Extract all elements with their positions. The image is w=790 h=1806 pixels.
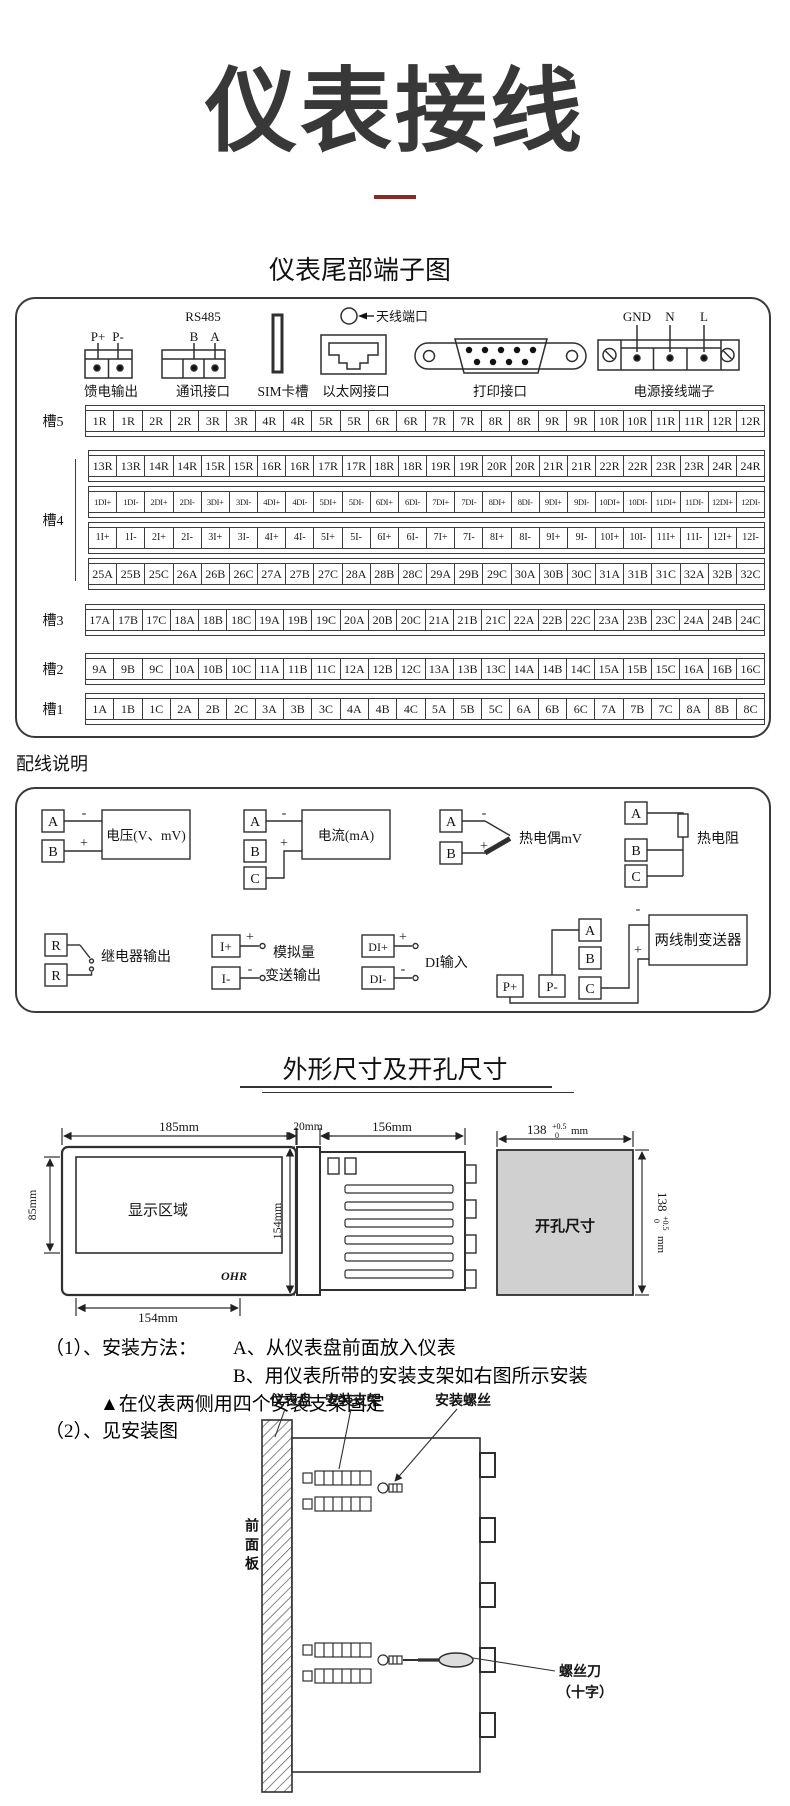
install-step1-b: B、用仪表所带的安装支架如右图所示安装 bbox=[233, 1361, 588, 1388]
terminal-cell: 5A bbox=[426, 699, 454, 719]
terminal-cell: 8DI+ bbox=[483, 492, 511, 512]
tc-t2: B bbox=[446, 847, 455, 862]
terminal-cell: 4I- bbox=[286, 528, 314, 548]
terminal-cell: 16R bbox=[258, 456, 286, 476]
terminal-cell: 24R bbox=[709, 456, 737, 476]
terminal-cell: 22B bbox=[539, 610, 567, 630]
terminal-cell: 1R bbox=[86, 411, 114, 431]
terminal-cell: 13R bbox=[89, 456, 117, 476]
terminal-cell: 18R bbox=[399, 456, 427, 476]
terminal-cell: 6I+ bbox=[371, 528, 399, 548]
rtd-t1: A bbox=[631, 807, 642, 822]
terminal-cell: 2R bbox=[171, 411, 199, 431]
terminal-cell: 30C bbox=[568, 564, 596, 584]
terminal-cell: 27B bbox=[286, 564, 314, 584]
terminal-cell: 19A bbox=[256, 610, 284, 630]
terminal-cell: 1DI- bbox=[117, 492, 145, 512]
display-area-label: 显示区域 bbox=[128, 1202, 188, 1219]
svg-text:mm: mm bbox=[655, 1236, 667, 1254]
terminal-cell: 4B bbox=[369, 699, 397, 719]
terminal-cell: 20A bbox=[341, 610, 369, 630]
terminal-cell: 16R bbox=[286, 456, 314, 476]
di-minus: - bbox=[401, 962, 406, 977]
terminal-cell: 20R bbox=[512, 456, 540, 476]
terminal-cell: 6B bbox=[539, 699, 567, 719]
current-t3: C bbox=[250, 872, 259, 887]
terminal-cell: 12A bbox=[341, 659, 369, 679]
terminal-cell: 19B bbox=[284, 610, 312, 630]
tc-t1: A bbox=[446, 815, 457, 830]
terminal-slot-row-4: 槽413R13R14R14R15R15R16R16R17R17R18R18R19… bbox=[33, 450, 765, 590]
svg-text:0: 0 bbox=[555, 1131, 559, 1140]
terminal-cell: 1A bbox=[86, 699, 114, 719]
terminal-cell: 32B bbox=[709, 564, 737, 584]
terminal-cell: 11I+ bbox=[652, 528, 680, 548]
terminal-cell: 23A bbox=[595, 610, 623, 630]
terminal-slot-row-2: 槽29A9B9C10A10B10C11A11B11C12A12B12C13A13… bbox=[33, 653, 765, 685]
terminal-cell: 9DI+ bbox=[540, 492, 568, 512]
voltage-t2: B bbox=[48, 845, 57, 860]
slot-label: 槽2 bbox=[33, 659, 73, 679]
terminal-cell: 3C bbox=[312, 699, 340, 719]
terminal-cell: 6DI- bbox=[399, 492, 427, 512]
current-label: 电流(mA) bbox=[318, 828, 374, 843]
terminal-cell: 5R bbox=[341, 411, 369, 431]
current-t2: B bbox=[250, 845, 259, 860]
terminal-cell: 23B bbox=[624, 610, 652, 630]
terminal-cell: 18A bbox=[171, 610, 199, 630]
terminal-cell: 32C bbox=[737, 564, 764, 584]
terminal-cell: 7R bbox=[454, 411, 482, 431]
terminal-cell: 5DI+ bbox=[314, 492, 342, 512]
terminal-cell: 6C bbox=[567, 699, 595, 719]
svg-text:138: 138 bbox=[655, 1192, 670, 1212]
terminal-cell: 20B bbox=[369, 610, 397, 630]
terminal-cell: 10I- bbox=[624, 528, 652, 548]
terminal-cell: 8R bbox=[482, 411, 510, 431]
terminal-cell: 1I- bbox=[117, 528, 145, 548]
cutout-width-dim: 138 +0.5 0 mm bbox=[527, 1122, 589, 1140]
terminal-cell: 14A bbox=[510, 659, 538, 679]
cutout-height-dim: 138 +0.5 0 mm bbox=[652, 1192, 670, 1254]
terminal-cell: 11R bbox=[680, 411, 708, 431]
terminal-cell: 11A bbox=[256, 659, 284, 679]
terminal-cell: 4DI- bbox=[286, 492, 314, 512]
current-t1: A bbox=[250, 815, 261, 830]
terminal-cell: 26A bbox=[174, 564, 202, 584]
terminal-cell: 8I- bbox=[512, 528, 540, 548]
terminal-cell: 29C bbox=[483, 564, 511, 584]
page-title: 仪表接线 bbox=[0, 62, 790, 162]
terminal-cell: 8R bbox=[510, 411, 538, 431]
terminal-cell: 9R bbox=[567, 411, 595, 431]
di-plus: + bbox=[399, 930, 407, 945]
terminal-cell: 3DI- bbox=[230, 492, 258, 512]
terminal-cell: 7R bbox=[426, 411, 454, 431]
tx-minus: - bbox=[636, 902, 641, 917]
terminal-cell: 26B bbox=[202, 564, 230, 584]
brand-logo: OHR bbox=[221, 1269, 247, 1283]
voltage-minus: - bbox=[82, 806, 87, 821]
terminal-cell: 8B bbox=[709, 699, 737, 719]
terminal-cell: 9I+ bbox=[540, 528, 568, 548]
slot-label: 槽3 bbox=[33, 610, 73, 630]
terminal-cell: 22R bbox=[596, 456, 624, 476]
terminal-cell: 2B bbox=[199, 699, 227, 719]
svg-text:+0.5: +0.5 bbox=[661, 1216, 670, 1231]
terminal-cell: 14R bbox=[145, 456, 173, 476]
svg-text:+0.5: +0.5 bbox=[552, 1122, 567, 1131]
side-flange-dim: 20mm bbox=[293, 1121, 322, 1133]
rtd-label: 热电阻 bbox=[697, 831, 739, 847]
analog-t2: I- bbox=[222, 971, 231, 986]
terminal-cell: 13A bbox=[426, 659, 454, 679]
terminal-cell: 5C bbox=[482, 699, 510, 719]
terminal-cell: 17C bbox=[143, 610, 171, 630]
terminal-cell: 28C bbox=[399, 564, 427, 584]
terminal-cell: 4I+ bbox=[258, 528, 286, 548]
terminal-cell: 5DI- bbox=[343, 492, 371, 512]
power-pin-gnd: GND bbox=[623, 309, 651, 324]
ethernet-port-label: 以太网接口 bbox=[322, 383, 390, 399]
terminal-cell: 23C bbox=[652, 610, 680, 630]
terminal-strip: 13R13R14R14R15R15R16R16R17R17R18R18R19R1… bbox=[88, 450, 765, 482]
relay-label: 继电器输出 bbox=[101, 949, 171, 965]
title-underline bbox=[374, 195, 416, 199]
sim-slot-label: SIM卡槽 bbox=[257, 384, 308, 399]
terminal-cell: 7A bbox=[595, 699, 623, 719]
terminal-cell: 12B bbox=[369, 659, 397, 679]
terminal-cell: 17A bbox=[86, 610, 114, 630]
printer-port-label: 打印接口 bbox=[473, 383, 527, 399]
terminal-cell: 4R bbox=[256, 411, 284, 431]
terminal-cell: 25A bbox=[89, 564, 117, 584]
terminal-cell: 15R bbox=[230, 456, 258, 476]
terminal-cell: 12DI- bbox=[737, 492, 764, 512]
power-terminal-label: 电源接线端子 bbox=[634, 383, 715, 399]
terminal-cell: 5B bbox=[454, 699, 482, 719]
terminal-cell: 11B bbox=[284, 659, 312, 679]
terminal-cell: 6A bbox=[510, 699, 538, 719]
terminal-cell: 1C bbox=[143, 699, 171, 719]
dimension-drawings: 185mm 85mm 显示区域 OHR 154mm 20mm 156mm 154… bbox=[0, 1040, 790, 1335]
analog-plus: + bbox=[246, 930, 254, 945]
relay-t1: R bbox=[51, 939, 61, 954]
terminal-slot-row-5: 槽51R1R2R2R3R3R4R4R5R5R6R6R7R7R8R8R9R9R10… bbox=[33, 405, 765, 437]
terminal-cell: 5I+ bbox=[314, 528, 342, 548]
terminal-cell: 20R bbox=[483, 456, 511, 476]
terminal-cell: 8DI- bbox=[512, 492, 540, 512]
terminal-cell: 11DI+ bbox=[652, 492, 680, 512]
svg-text:0: 0 bbox=[652, 1219, 661, 1223]
terminal-cell: 1DI+ bbox=[89, 492, 117, 512]
front-height-dim: 85mm bbox=[25, 1189, 39, 1220]
terminal-cell: 2DI+ bbox=[145, 492, 173, 512]
terminal-cell: 28B bbox=[371, 564, 399, 584]
current-plus: + bbox=[280, 836, 288, 851]
terminal-cell: 29A bbox=[427, 564, 455, 584]
install-step1: （1）、安装方法： bbox=[45, 1333, 197, 1360]
terminal-strip: 17A17B17C18A18B18C19A19B19C20A20B20C21A2… bbox=[85, 604, 765, 636]
tc-minus: - bbox=[482, 806, 487, 821]
terminal-cell: 21R bbox=[540, 456, 568, 476]
terminal-cell: 12I- bbox=[737, 528, 764, 548]
wiring-section-heading: 配线说明 bbox=[16, 750, 88, 776]
terminal-cell: 12I+ bbox=[709, 528, 737, 548]
terminal-cell: 4C bbox=[397, 699, 425, 719]
terminal-cell: 11I- bbox=[681, 528, 709, 548]
terminal-cell: 8I+ bbox=[483, 528, 511, 548]
terminal-cell: 26C bbox=[230, 564, 258, 584]
terminal-cell: 22A bbox=[510, 610, 538, 630]
terminal-cell: 10R bbox=[624, 411, 652, 431]
rtd-t3: C bbox=[631, 870, 640, 885]
terminal-cell: 24C bbox=[737, 610, 764, 630]
terminal-cell: 8A bbox=[680, 699, 708, 719]
terminal-cell: 10DI- bbox=[624, 492, 652, 512]
terminal-cell: 8C bbox=[737, 699, 764, 719]
di-label: DI输入 bbox=[425, 955, 468, 971]
terminal-cell: 24B bbox=[709, 610, 737, 630]
svg-text:138: 138 bbox=[527, 1122, 547, 1137]
terminal-cell: 23R bbox=[681, 456, 709, 476]
terminal-cell: 21A bbox=[426, 610, 454, 630]
feed-output-label: 馈电输出 bbox=[84, 384, 138, 399]
terminal-cell: 10B bbox=[199, 659, 227, 679]
rtd-t2: B bbox=[631, 844, 640, 859]
terminal-cell: 27A bbox=[258, 564, 286, 584]
terminal-cell: 17R bbox=[343, 456, 371, 476]
terminal-cell: 10I+ bbox=[596, 528, 624, 548]
thermocouple-label: 热电偶mV bbox=[519, 831, 582, 847]
di-t2: DI- bbox=[370, 972, 387, 986]
terminal-cell: 6DI+ bbox=[371, 492, 399, 512]
front-width-dim: 185mm bbox=[159, 1119, 199, 1134]
side-depth-dim: 156mm bbox=[372, 1119, 412, 1134]
terminal-cell: 20C bbox=[397, 610, 425, 630]
power-pin-n: N bbox=[665, 309, 675, 324]
slot-label: 槽5 bbox=[33, 411, 73, 431]
terminal-cell: 13R bbox=[117, 456, 145, 476]
terminal-cell: 11DI- bbox=[681, 492, 709, 512]
terminal-cell: 19C bbox=[312, 610, 340, 630]
slot-label: 槽4 bbox=[33, 510, 73, 530]
side-height-dim: 154mm bbox=[270, 1202, 284, 1239]
terminal-strip: 1I+1I-2I+2I-3I+3I-4I+4I-5I+5I-6I+6I-7I+7… bbox=[88, 522, 765, 554]
terminal-cell: 22C bbox=[567, 610, 595, 630]
terminal-cell: 11C bbox=[312, 659, 340, 679]
terminal-cell: 1R bbox=[114, 411, 142, 431]
current-minus: - bbox=[282, 806, 287, 821]
terminal-cell: 10DI+ bbox=[596, 492, 624, 512]
terminal-cell: 18R bbox=[371, 456, 399, 476]
terminal-cell: 14R bbox=[174, 456, 202, 476]
terminal-cell: 9R bbox=[539, 411, 567, 431]
relay-t2: R bbox=[51, 969, 61, 984]
terminal-cell: 16C bbox=[737, 659, 764, 679]
terminal-cell: 1I+ bbox=[89, 528, 117, 548]
install-step2: （2）、见安装图 bbox=[45, 1416, 178, 1443]
tx-t3: C bbox=[585, 982, 594, 997]
voltage-label: 电压(V、mV) bbox=[106, 828, 186, 843]
wiring-diagrams-drawing: A B - + 电压(V、mV) A B C - + 电流(mA) A B - … bbox=[17, 789, 769, 1011]
comm-pin-a: A bbox=[210, 329, 220, 344]
transmitter-label: 两线制变送器 bbox=[655, 932, 742, 949]
terminal-cell: 2A bbox=[171, 699, 199, 719]
terminal-cell: 4R bbox=[284, 411, 312, 431]
terminal-cell: 15C bbox=[652, 659, 680, 679]
screwdriver-type-label: （十字） bbox=[557, 1684, 613, 1701]
terminal-strip: 1R1R2R2R3R3R4R4R5R5R6R6R7R7R8R8R9R9R10R1… bbox=[85, 405, 765, 437]
terminal-cell: 9B bbox=[114, 659, 142, 679]
terminal-cell: 23R bbox=[652, 456, 680, 476]
terminal-cell: 3DI+ bbox=[202, 492, 230, 512]
tc-plus: + bbox=[480, 839, 488, 854]
terminal-cell: 10A bbox=[171, 659, 199, 679]
feed-pin-plus: P+ bbox=[91, 329, 106, 344]
terminal-cell: 18C bbox=[227, 610, 255, 630]
di-t1: DI+ bbox=[368, 940, 388, 954]
terminal-cell: 19R bbox=[455, 456, 483, 476]
terminal-cell: 15A bbox=[595, 659, 623, 679]
installation-figure: 仪表盘 安装支架 安装螺丝 螺丝刀 （十字） bbox=[225, 1385, 710, 1803]
terminal-cell: 14B bbox=[539, 659, 567, 679]
tx-plus: + bbox=[634, 943, 642, 958]
screwdriver-label: 螺丝刀 bbox=[559, 1663, 601, 1680]
analog-t1: I+ bbox=[220, 939, 232, 954]
tx-p2: P- bbox=[546, 979, 558, 994]
terminal-cell: 22R bbox=[624, 456, 652, 476]
bracket-label: 安装支架 bbox=[325, 1392, 381, 1409]
voltage-plus: + bbox=[80, 836, 88, 851]
terminal-cell: 24A bbox=[680, 610, 708, 630]
terminal-cell: 19R bbox=[427, 456, 455, 476]
wiring-diagram-box: A B - + 电压(V、mV) A B C - + 电流(mA) A B - … bbox=[15, 787, 771, 1013]
terminal-cell: 11R bbox=[652, 411, 680, 431]
tx-p1: P+ bbox=[503, 979, 518, 994]
terminal-cell: 1B bbox=[114, 699, 142, 719]
terminal-cell: 15B bbox=[624, 659, 652, 679]
terminal-cell: 6R bbox=[397, 411, 425, 431]
terminal-cell: 6I- bbox=[399, 528, 427, 548]
terminal-cell: 21R bbox=[568, 456, 596, 476]
terminal-cell: 31C bbox=[652, 564, 680, 584]
terminal-cell: 27C bbox=[314, 564, 342, 584]
panel-label: 仪表盘 bbox=[269, 1392, 312, 1409]
terminal-cell: 17R bbox=[314, 456, 342, 476]
feed-pin-minus: P- bbox=[112, 329, 124, 344]
terminal-cell: 25B bbox=[117, 564, 145, 584]
terminal-cell: 3R bbox=[199, 411, 227, 431]
rear-connectors-drawing: P+ P- RS485 B A GND N L 天线端口 馈电输出 通讯接口 S… bbox=[17, 299, 769, 404]
terminal-cell: 7DI+ bbox=[427, 492, 455, 512]
terminal-cell: 2C bbox=[227, 699, 255, 719]
terminal-slot-row-1: 槽11A1B1C2A2B2C3A3B3C4A4B4C5A5B5C6A6B6C7A… bbox=[33, 693, 765, 725]
rs485-label: RS485 bbox=[185, 309, 220, 324]
front-bottom-dim: 154mm bbox=[138, 1310, 178, 1325]
terminal-section-heading: 仪表尾部端子图 bbox=[0, 250, 720, 287]
comm-port-label: 通讯接口 bbox=[176, 383, 230, 399]
terminal-cell: 16A bbox=[680, 659, 708, 679]
svg-text:mm: mm bbox=[571, 1125, 589, 1137]
analog-label-2: 变送输出 bbox=[265, 968, 321, 984]
terminal-cell: 12R bbox=[737, 411, 764, 431]
terminal-slot-row-3: 槽317A17B17C18A18B18C19A19B19C20A20B20C21… bbox=[33, 604, 765, 636]
terminal-cell: 3B bbox=[284, 699, 312, 719]
terminal-cell: 9DI- bbox=[568, 492, 596, 512]
terminal-cell: 3I+ bbox=[202, 528, 230, 548]
analog-label-1: 模拟量 bbox=[273, 945, 315, 961]
terminal-cell: 9I- bbox=[568, 528, 596, 548]
terminal-cell: 21B bbox=[454, 610, 482, 630]
tx-t1: A bbox=[585, 924, 596, 939]
terminal-strip: 1A1B1C2A2B2C3A3B3C4A4B4C5A5B5C6A6B6C7A7B… bbox=[85, 693, 765, 725]
terminal-cell: 5R bbox=[312, 411, 340, 431]
terminal-strip: 9A9B9C10A10B10C11A11B11C12A12B12C13A13B1… bbox=[85, 653, 765, 685]
terminal-cell: 4DI+ bbox=[258, 492, 286, 512]
terminal-cell: 7C bbox=[652, 699, 680, 719]
terminal-cell: 28A bbox=[343, 564, 371, 584]
slot-bracket bbox=[75, 459, 76, 581]
comm-pin-b: B bbox=[190, 329, 199, 344]
terminal-cell: 21C bbox=[482, 610, 510, 630]
terminal-cell: 15R bbox=[202, 456, 230, 476]
terminal-cell: 12R bbox=[709, 411, 737, 431]
cutout-label: 开孔尺寸 bbox=[535, 1217, 595, 1235]
terminal-cell: 24R bbox=[737, 456, 764, 476]
terminal-cell: 3A bbox=[256, 699, 284, 719]
terminal-cell: 9A bbox=[86, 659, 114, 679]
terminal-cell: 25C bbox=[145, 564, 173, 584]
terminal-cell: 2DI- bbox=[174, 492, 202, 512]
slot-label: 槽1 bbox=[33, 699, 73, 719]
terminal-cell: 7I+ bbox=[427, 528, 455, 548]
terminal-cell: 10C bbox=[227, 659, 255, 679]
terminal-cell: 13C bbox=[482, 659, 510, 679]
terminal-strip: 1DI+1DI-2DI+2DI-3DI+3DI-4DI+4DI-5DI+5DI-… bbox=[88, 486, 765, 518]
terminal-strip: 25A25B25C26A26B26C27A27B27C28A28B28C29A2… bbox=[88, 558, 765, 590]
power-pin-l: L bbox=[700, 309, 708, 324]
voltage-t1: A bbox=[48, 815, 59, 830]
terminal-cell: 7I- bbox=[455, 528, 483, 548]
terminal-cell: 31A bbox=[596, 564, 624, 584]
terminal-cell: 30A bbox=[512, 564, 540, 584]
terminal-cell: 31B bbox=[624, 564, 652, 584]
terminal-cell: 2I- bbox=[174, 528, 202, 548]
tx-t2: B bbox=[585, 952, 594, 967]
terminal-cell: 3I- bbox=[230, 528, 258, 548]
manual-page: 仪表接线 仪表尾部端子图 bbox=[0, 0, 790, 1806]
install-step1-a: A、从仪表盘前面放入仪表 bbox=[233, 1333, 456, 1360]
terminal-cell: 18B bbox=[199, 610, 227, 630]
terminal-cell: 2I+ bbox=[145, 528, 173, 548]
terminal-cell: 16B bbox=[709, 659, 737, 679]
terminal-cell: 5I- bbox=[343, 528, 371, 548]
antenna-port-label: 天线端口 bbox=[376, 309, 428, 324]
terminal-cell: 10R bbox=[595, 411, 623, 431]
terminal-cell: 6R bbox=[369, 411, 397, 431]
terminal-cell: 3R bbox=[227, 411, 255, 431]
terminal-cell: 14C bbox=[567, 659, 595, 679]
terminal-diagram-box: P+ P- RS485 B A GND N L 天线端口 馈电输出 通讯接口 S… bbox=[15, 297, 771, 738]
terminal-cell: 7DI- bbox=[455, 492, 483, 512]
terminal-cell: 13B bbox=[454, 659, 482, 679]
terminal-cell: 30B bbox=[540, 564, 568, 584]
terminal-cell: 9C bbox=[143, 659, 171, 679]
terminal-cell: 7B bbox=[624, 699, 652, 719]
terminal-cell: 12DI+ bbox=[709, 492, 737, 512]
terminal-cell: 17B bbox=[114, 610, 142, 630]
